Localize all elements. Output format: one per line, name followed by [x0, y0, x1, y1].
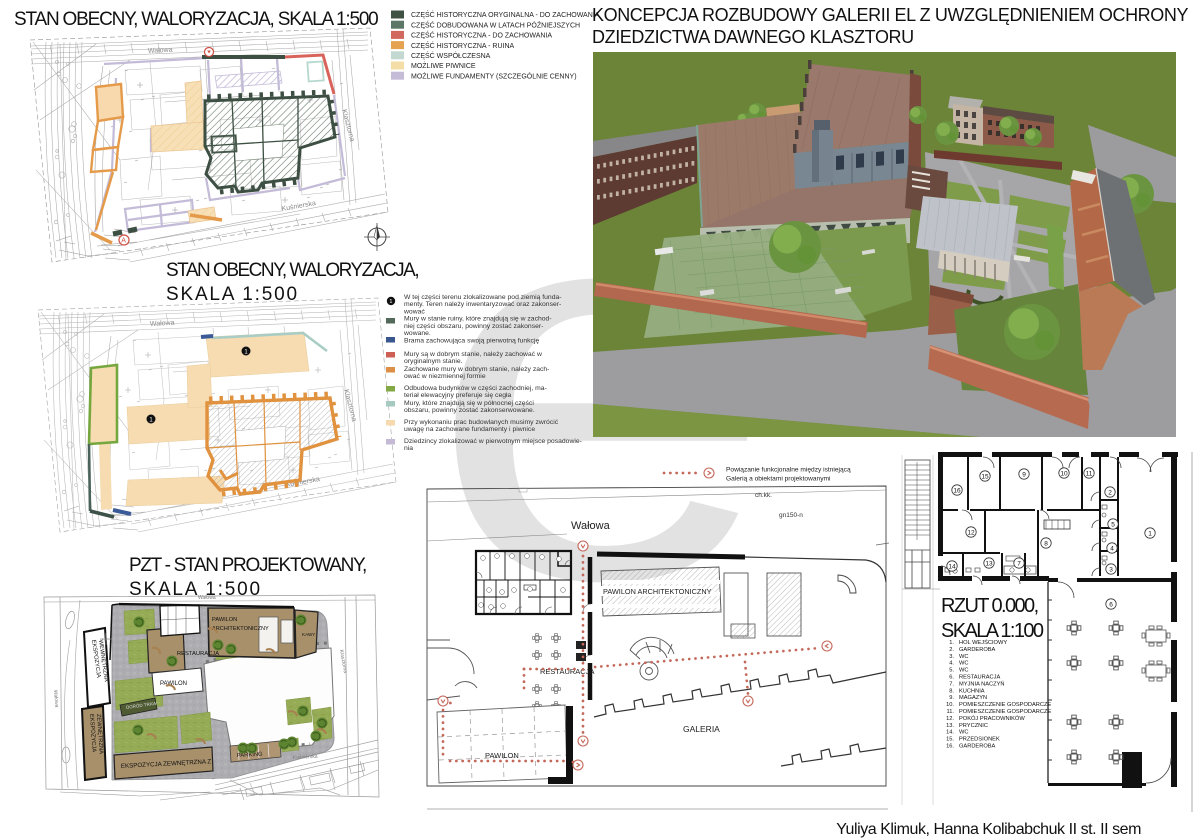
- svg-text:KUCHNIA: KUCHNIA: [959, 688, 985, 694]
- svg-text:SKALA 1:500: SKALA 1:500: [166, 284, 299, 305]
- svg-text:CZĘŚĆ DOBUDOWANA W LATACH PÓŹN: CZĘŚĆ DOBUDOWANA W LATACH PÓŹNIEJSZYCH: [411, 20, 580, 29]
- svg-text:4: 4: [1110, 545, 1114, 552]
- svg-text:2.: 2.: [949, 647, 954, 653]
- svg-text:Mury, które znajdują się w pół: Mury, które znajdują się w północnej czę…: [404, 400, 534, 407]
- svg-text:12: 12: [967, 529, 975, 536]
- svg-text:Brama zachowująca swoją pierwo: Brama zachowująca swoją pierwotną funkcj…: [404, 338, 539, 345]
- svg-text:RESTAURACJA: RESTAURACJA: [177, 651, 219, 657]
- svg-text:menty. Teren należy inwentaryz: menty. Teren należy inwentaryzować oraz …: [404, 301, 561, 308]
- svg-text:gn150-n: gn150-n: [779, 512, 803, 519]
- svg-text:uwagę na zachowane fundamenty: uwagę na zachowane fundamenty i piwnice: [404, 426, 535, 433]
- svg-text:PZT - STAN PROJEKTOWANY,: PZT - STAN PROJEKTOWANY,: [129, 555, 366, 576]
- svg-text:CZĘŚĆ WSPÓŁCZESNA: CZĘŚĆ WSPÓŁCZESNA: [411, 51, 491, 60]
- svg-text:PAWILON ARCHITEKTONICZNY: PAWILON ARCHITEKTONICZNY: [603, 587, 712, 596]
- svg-text:11.: 11.: [947, 709, 955, 715]
- svg-text:W tej części terenu zlokalizow: W tej części terenu zlokalizowane pod zi…: [404, 294, 562, 301]
- svg-text:WC: WC: [959, 661, 968, 667]
- svg-text:1.: 1.: [949, 640, 954, 646]
- svg-text:9.: 9.: [949, 695, 954, 701]
- svg-text:ować w niezmiennej formie: ować w niezmiennej formie: [404, 373, 486, 380]
- svg-text:KAWY: KAWY: [302, 632, 315, 637]
- svg-text:10: 10: [1060, 470, 1068, 477]
- svg-text:SKALA 1:500: SKALA 1:500: [129, 579, 262, 600]
- svg-text:2: 2: [1108, 489, 1112, 496]
- svg-text:6.: 6.: [949, 675, 954, 681]
- svg-text:RZUT 0.000,: RZUT 0.000,: [941, 595, 1038, 617]
- svg-text:MOŻLIWE PIWNICE: MOŻLIWE PIWNICE: [411, 61, 476, 70]
- svg-text:5.: 5.: [949, 668, 954, 674]
- svg-text:WC: WC: [959, 654, 968, 660]
- svg-text:CZĘŚĆ HISTORYCZNA ORYGINALNA -: CZĘŚĆ HISTORYCZNA ORYGINALNA - DO ZACHOW…: [411, 10, 600, 19]
- svg-text:3.: 3.: [949, 654, 954, 660]
- svg-text:PAWILON: PAWILON: [485, 751, 519, 760]
- svg-text:Wałowa: Wałowa: [150, 320, 175, 328]
- svg-text:15.: 15.: [946, 737, 954, 743]
- svg-text:Powiązanie funkcjonalne między: Powiązanie funkcjonalne między istniejąc…: [726, 467, 851, 474]
- svg-text:niej części obszaru, powinny z: niej części obszaru, powinny zostać zako…: [404, 323, 543, 330]
- svg-text:5: 5: [1111, 521, 1115, 528]
- svg-text:KONCEPCJA ROZBUDOWY GALERII EL: KONCEPCJA ROZBUDOWY GALERII EL Z UWZGLĘD…: [592, 5, 1188, 25]
- svg-text:ARCHITEKTONICZNY: ARCHITEKTONICZNY: [212, 626, 269, 632]
- svg-text:RESTAURACJA: RESTAURACJA: [959, 675, 1000, 681]
- svg-text:6: 6: [1109, 601, 1113, 608]
- svg-text:12.: 12.: [946, 716, 954, 722]
- svg-text:8: 8: [1044, 540, 1048, 547]
- svg-text:Przy wykonaniu prac budowlanyc: Przy wykonaniu prac budowlanych musimy z…: [404, 419, 559, 426]
- svg-text:Wałowa: Wałowa: [148, 47, 173, 55]
- svg-text:STAN OBECNY, WALORYZACJA, SKAL: STAN OBECNY, WALORYZACJA, SKALA 1:500: [14, 9, 378, 30]
- svg-text:ch.kk.: ch.kk.: [755, 492, 772, 499]
- svg-text:4.: 4.: [949, 661, 954, 667]
- svg-text:Wałowa: Wałowa: [571, 520, 611, 532]
- svg-text:PRZEDSIONEK: PRZEDSIONEK: [959, 737, 1000, 743]
- svg-text:7.: 7.: [949, 681, 954, 687]
- svg-text:GARDEROBA: GARDEROBA: [959, 744, 996, 750]
- svg-text:7: 7: [1017, 560, 1021, 567]
- svg-text:Mury w stanie ruiny, które zna: Mury w stanie ruiny, które znajdują się …: [404, 316, 552, 323]
- svg-text:teriał elewacyjny preferuje si: teriał elewacyjny preferuje się cegła: [404, 392, 512, 399]
- svg-text:10.: 10.: [946, 702, 954, 708]
- svg-text:WC: WC: [959, 730, 968, 736]
- svg-text:13: 13: [985, 560, 993, 567]
- svg-text:Yuliya Klimuk, Hanna Kolibabch: Yuliya Klimuk, Hanna Kolibabchuk II st. …: [836, 821, 1141, 838]
- svg-text:Galerią a obiektami projektowa: Galerią a obiektami projektowanymi: [726, 476, 831, 483]
- svg-text:DZIEDZICTWA DAWNEGO KLASZTORU: DZIEDZICTWA DAWNEGO KLASZTORU: [592, 27, 914, 47]
- svg-text:MYJNIA NACZYŃ: MYJNIA NACZYŃ: [959, 680, 1005, 687]
- svg-text:8.: 8.: [949, 688, 954, 694]
- svg-text:POMIESZCZENIE GOSPODARCZE: POMIESZCZENIE GOSPODARCZE: [959, 709, 1051, 715]
- svg-text:13.: 13.: [946, 723, 954, 729]
- svg-text:HOL WEJŚCIOWY: HOL WEJŚCIOWY: [959, 638, 1007, 646]
- svg-text:oryginalnym stanie.: oryginalnym stanie.: [404, 358, 463, 365]
- svg-text:CZĘŚĆ HISTORYCZNA - DO ZACHOWA: CZĘŚĆ HISTORYCZNA - DO ZACHOWANIA: [411, 31, 552, 40]
- svg-text:obszaru, powinny zostać zakons: obszaru, powinny zostać zakonserwowane.: [404, 407, 535, 414]
- svg-text:wowane.: wowane.: [403, 330, 431, 337]
- svg-text:Odbudowa budynków w części zac: Odbudowa budynków w części zachodniej, m…: [404, 385, 547, 392]
- svg-text:Wałowa: Wałowa: [198, 595, 216, 601]
- svg-text:GALERIA: GALERIA: [683, 724, 720, 734]
- svg-text:15: 15: [981, 473, 989, 480]
- svg-text:Zachowane mury w dobrym stanie: Zachowane mury w dobrym stanie, należy z…: [404, 366, 549, 373]
- svg-text:PAWILON: PAWILON: [212, 617, 237, 623]
- svg-text:POMIESZCZENIE GOSPODARCZE: POMIESZCZENIE GOSPODARCZE: [959, 702, 1051, 708]
- svg-text:POKÓJ PRACOWNIKÓW: POKÓJ PRACOWNIKÓW: [959, 715, 1025, 722]
- svg-text:Dziedzincy zlokalizować w pier: Dziedzincy zlokalizować w pierwotnym mie…: [404, 438, 582, 445]
- svg-text:GARDEROBA: GARDEROBA: [959, 647, 996, 653]
- svg-text:SKALA 1:100: SKALA 1:100: [941, 620, 1044, 642]
- svg-text:A: A: [121, 238, 126, 245]
- svg-text:Mury są w dobrym stanie, należ: Mury są w dobrym stanie, należy zachować…: [404, 351, 542, 358]
- svg-text:14: 14: [948, 563, 956, 570]
- svg-text:1: 1: [389, 299, 392, 305]
- svg-text:CZĘŚĆ HISTORYCZNA - RUINA: CZĘŚĆ HISTORYCZNA - RUINA: [411, 41, 515, 50]
- svg-text:16: 16: [953, 487, 961, 494]
- svg-text:16.: 16.: [946, 744, 954, 750]
- svg-text:MOŻLIWE FUNDAMENTY (SZCZEGÓLNI: MOŻLIWE FUNDAMENTY (SZCZEGÓLNIE CENNY): [411, 71, 577, 80]
- svg-text:nia: nia: [404, 445, 413, 452]
- svg-text:11: 11: [1086, 470, 1093, 477]
- svg-text:9: 9: [1022, 471, 1026, 478]
- svg-text:MAGAZYN: MAGAZYN: [959, 695, 987, 701]
- svg-text:STAN OBECNY, WALORYZACJA,: STAN OBECNY, WALORYZACJA,: [166, 260, 418, 281]
- svg-text:WC: WC: [959, 668, 968, 674]
- svg-text:wować: wować: [403, 308, 425, 315]
- svg-text:3: 3: [1109, 566, 1113, 573]
- svg-text:14.: 14.: [946, 730, 954, 736]
- svg-text:PRYCZNIC: PRYCZNIC: [959, 723, 988, 729]
- svg-text:1: 1: [1148, 530, 1152, 537]
